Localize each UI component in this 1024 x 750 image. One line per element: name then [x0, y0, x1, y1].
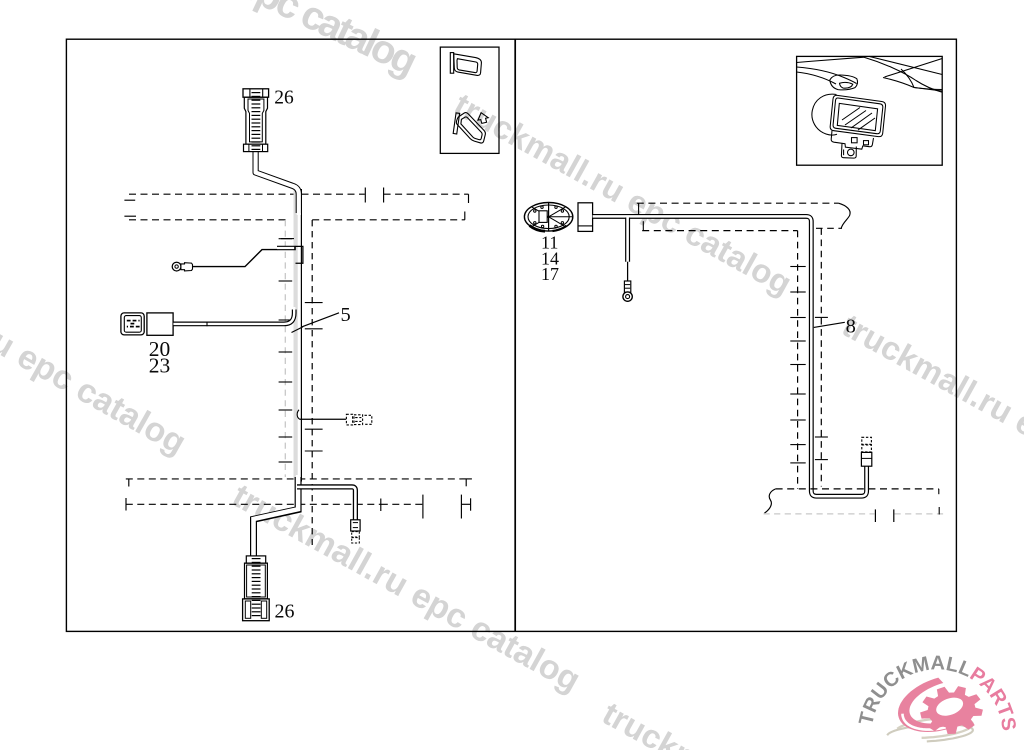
svg-text:17: 17 [541, 264, 559, 284]
svg-text:8: 8 [846, 315, 856, 337]
svg-text:26: 26 [274, 87, 294, 108]
svg-text:5: 5 [341, 304, 351, 326]
svg-text:truckmall.ru epc catalog: truckmall.ru epc catalog [48, 0, 422, 83]
svg-text:truckmall.ru epc catalog: truckmall.ru epc catalog [448, 86, 798, 302]
svg-text:23: 23 [149, 353, 171, 377]
svg-text:26: 26 [275, 601, 295, 623]
svg-text:truckmall.ru epc catalog: truckmall.ru epc catalog [597, 694, 947, 750]
